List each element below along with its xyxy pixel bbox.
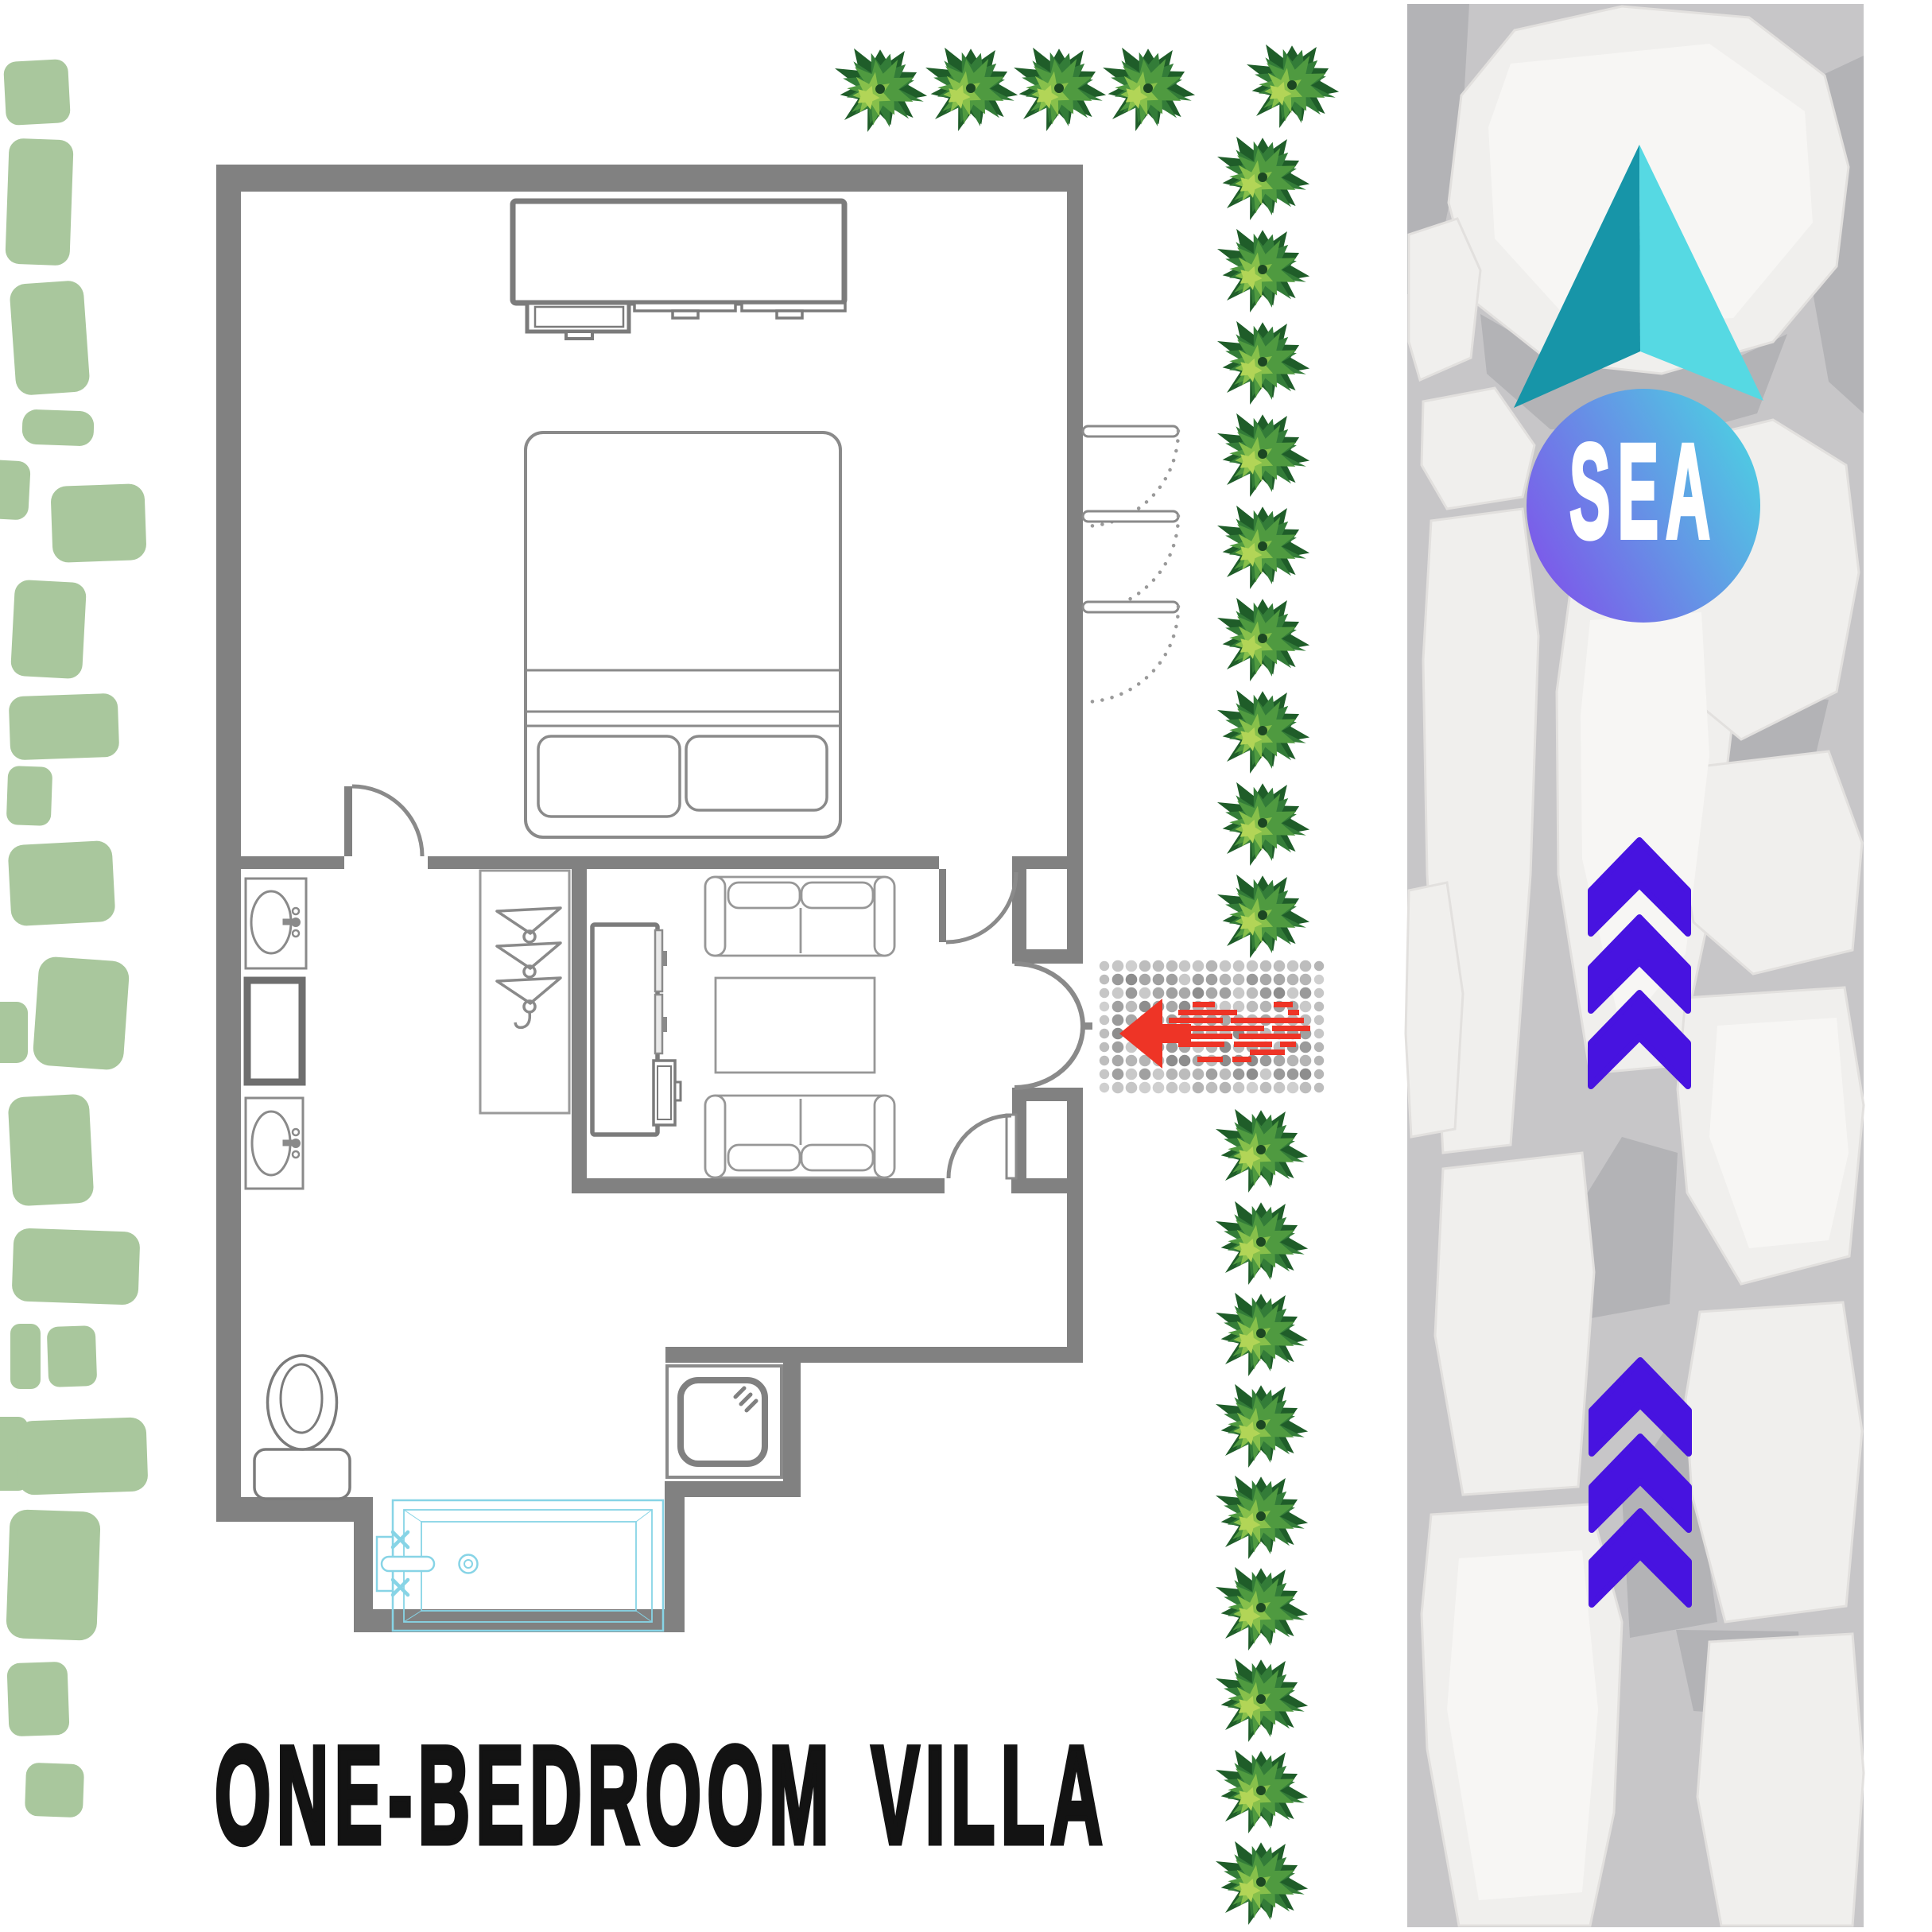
svg-text:ONE-BEDROOM VILLA: ONE-BEDROOM VILLA	[215, 1718, 1108, 1873]
svg-text:SEA: SEA	[1569, 416, 1717, 566]
